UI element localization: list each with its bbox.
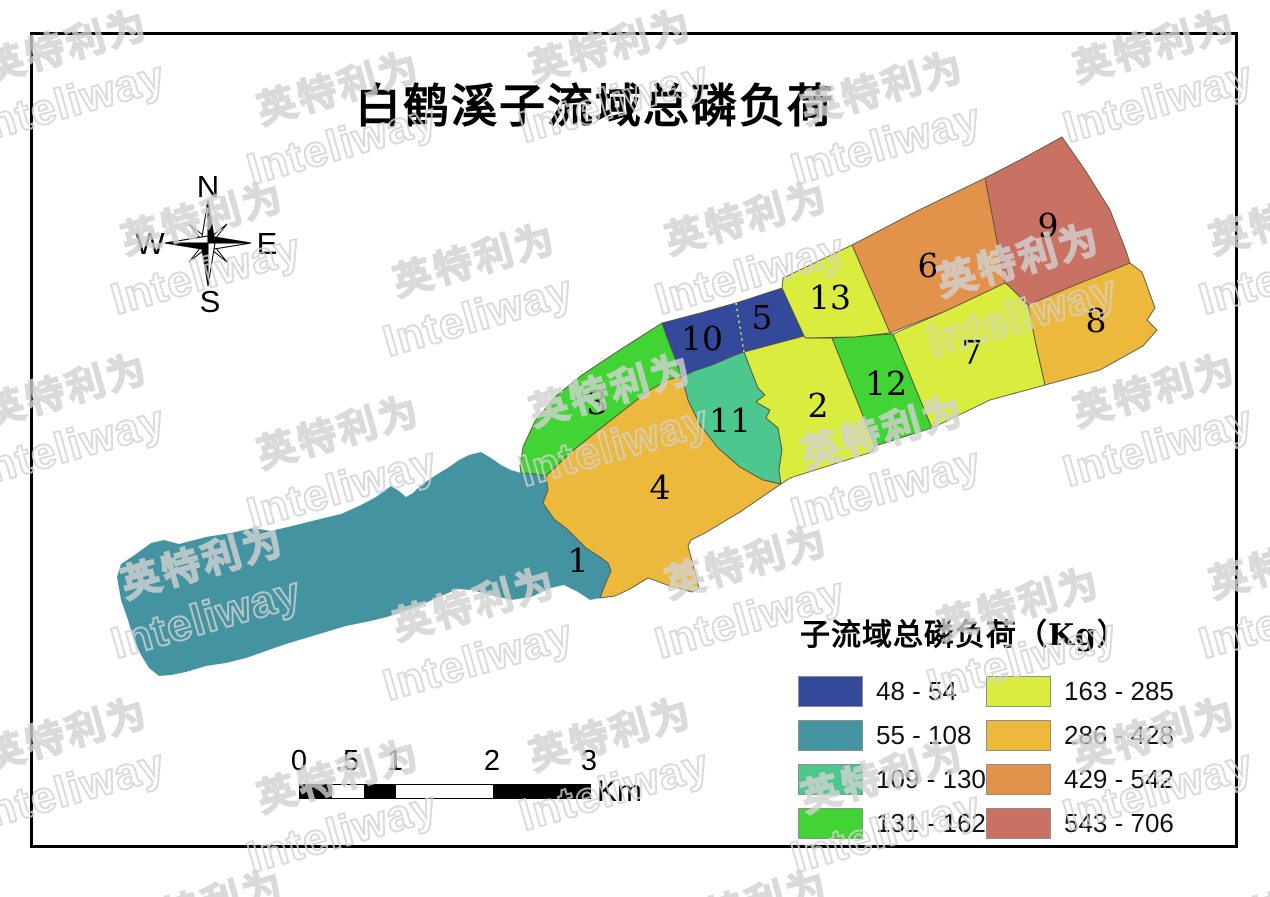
region-1 bbox=[117, 452, 611, 676]
scale-tick: 0 bbox=[279, 745, 319, 778]
scale-tick: 1 bbox=[375, 745, 415, 778]
compass-arm-e-black bbox=[208, 236, 251, 243]
legend-range: 543 - 706 bbox=[1064, 808, 1174, 839]
scale-bar-unit: Km bbox=[597, 775, 642, 809]
legend-swatch bbox=[798, 676, 863, 707]
region-label-11: 11 bbox=[709, 401, 751, 440]
legend-item: 55 - 108 bbox=[798, 720, 986, 751]
compass-label-east: E bbox=[257, 226, 278, 261]
legend-swatch bbox=[798, 808, 863, 839]
region-label-13: 13 bbox=[809, 278, 851, 317]
legend-item: 131 - 162 bbox=[798, 808, 986, 839]
scale-segment bbox=[493, 785, 590, 798]
compass-arm-w-white bbox=[165, 236, 208, 243]
legend-item: 543 - 706 bbox=[986, 808, 1174, 839]
scale-segment bbox=[364, 785, 396, 798]
legend-range: 48 - 54 bbox=[876, 676, 957, 707]
legend-item: 109 - 130 bbox=[798, 764, 986, 795]
region-label-4: 4 bbox=[650, 468, 671, 507]
legend-range: 163 - 285 bbox=[1064, 676, 1174, 707]
legend-range: 429 - 542 bbox=[1064, 764, 1174, 795]
map-document: 13411212789613510 白鹤溪子流域总磷负荷 N E S W bbox=[0, 0, 1270, 897]
legend-swatch bbox=[798, 764, 863, 795]
legend-swatch bbox=[986, 808, 1051, 839]
region-label-1: 1 bbox=[568, 541, 589, 580]
region-label-7: 7 bbox=[962, 333, 983, 372]
legend-swatch bbox=[986, 676, 1051, 707]
legend-range: 109 - 130 bbox=[876, 764, 986, 795]
legend-items: 48 - 5455 - 108109 - 130131 - 162163 - 2… bbox=[798, 676, 1238, 839]
legend-item: 429 - 542 bbox=[986, 764, 1174, 795]
compass-arm-w-black bbox=[165, 243, 208, 250]
scale-tick: 3 bbox=[569, 745, 609, 778]
legend-range: 55 - 108 bbox=[876, 720, 971, 751]
legend-range: 131 - 162 bbox=[876, 808, 986, 839]
scale-segment bbox=[300, 785, 332, 798]
region-label-6: 6 bbox=[918, 246, 939, 285]
region-label-12: 12 bbox=[865, 364, 907, 403]
scale-bar: Km 0.5123 bbox=[299, 745, 659, 805]
legend-swatch bbox=[986, 764, 1051, 795]
region-label-8: 8 bbox=[1086, 301, 1107, 340]
compass-label-south: S bbox=[200, 284, 221, 319]
legend-range: 286 - 428 bbox=[1064, 720, 1174, 751]
region-label-9: 9 bbox=[1038, 206, 1059, 245]
region-label-2: 2 bbox=[808, 386, 829, 425]
compass-label-west: W bbox=[135, 226, 165, 261]
legend: 子流域总磷负荷（Kg） 48 - 5455 - 108109 - 130131 … bbox=[798, 610, 1238, 839]
legend-title: 子流域总磷负荷（Kg） bbox=[800, 610, 1238, 654]
region-label-5: 5 bbox=[752, 298, 773, 337]
legend-item: 48 - 54 bbox=[798, 676, 986, 707]
legend-swatch bbox=[986, 720, 1051, 751]
scale-bar-strip bbox=[299, 784, 591, 799]
scale-tick: 2 bbox=[472, 745, 512, 778]
scale-tick: .5 bbox=[327, 745, 367, 778]
compass-label-north: N bbox=[197, 169, 219, 204]
page-title: 白鹤溪子流域总磷负荷 bbox=[355, 70, 835, 136]
compass-rose-icon: N E S W bbox=[120, 160, 300, 330]
legend-item: 286 - 428 bbox=[986, 720, 1174, 751]
legend-item: 163 - 285 bbox=[986, 676, 1174, 707]
legend-swatch bbox=[798, 720, 863, 751]
compass-arm-s-white bbox=[208, 243, 215, 286]
region-label-10: 10 bbox=[681, 319, 723, 358]
region-label-3: 3 bbox=[587, 383, 608, 422]
